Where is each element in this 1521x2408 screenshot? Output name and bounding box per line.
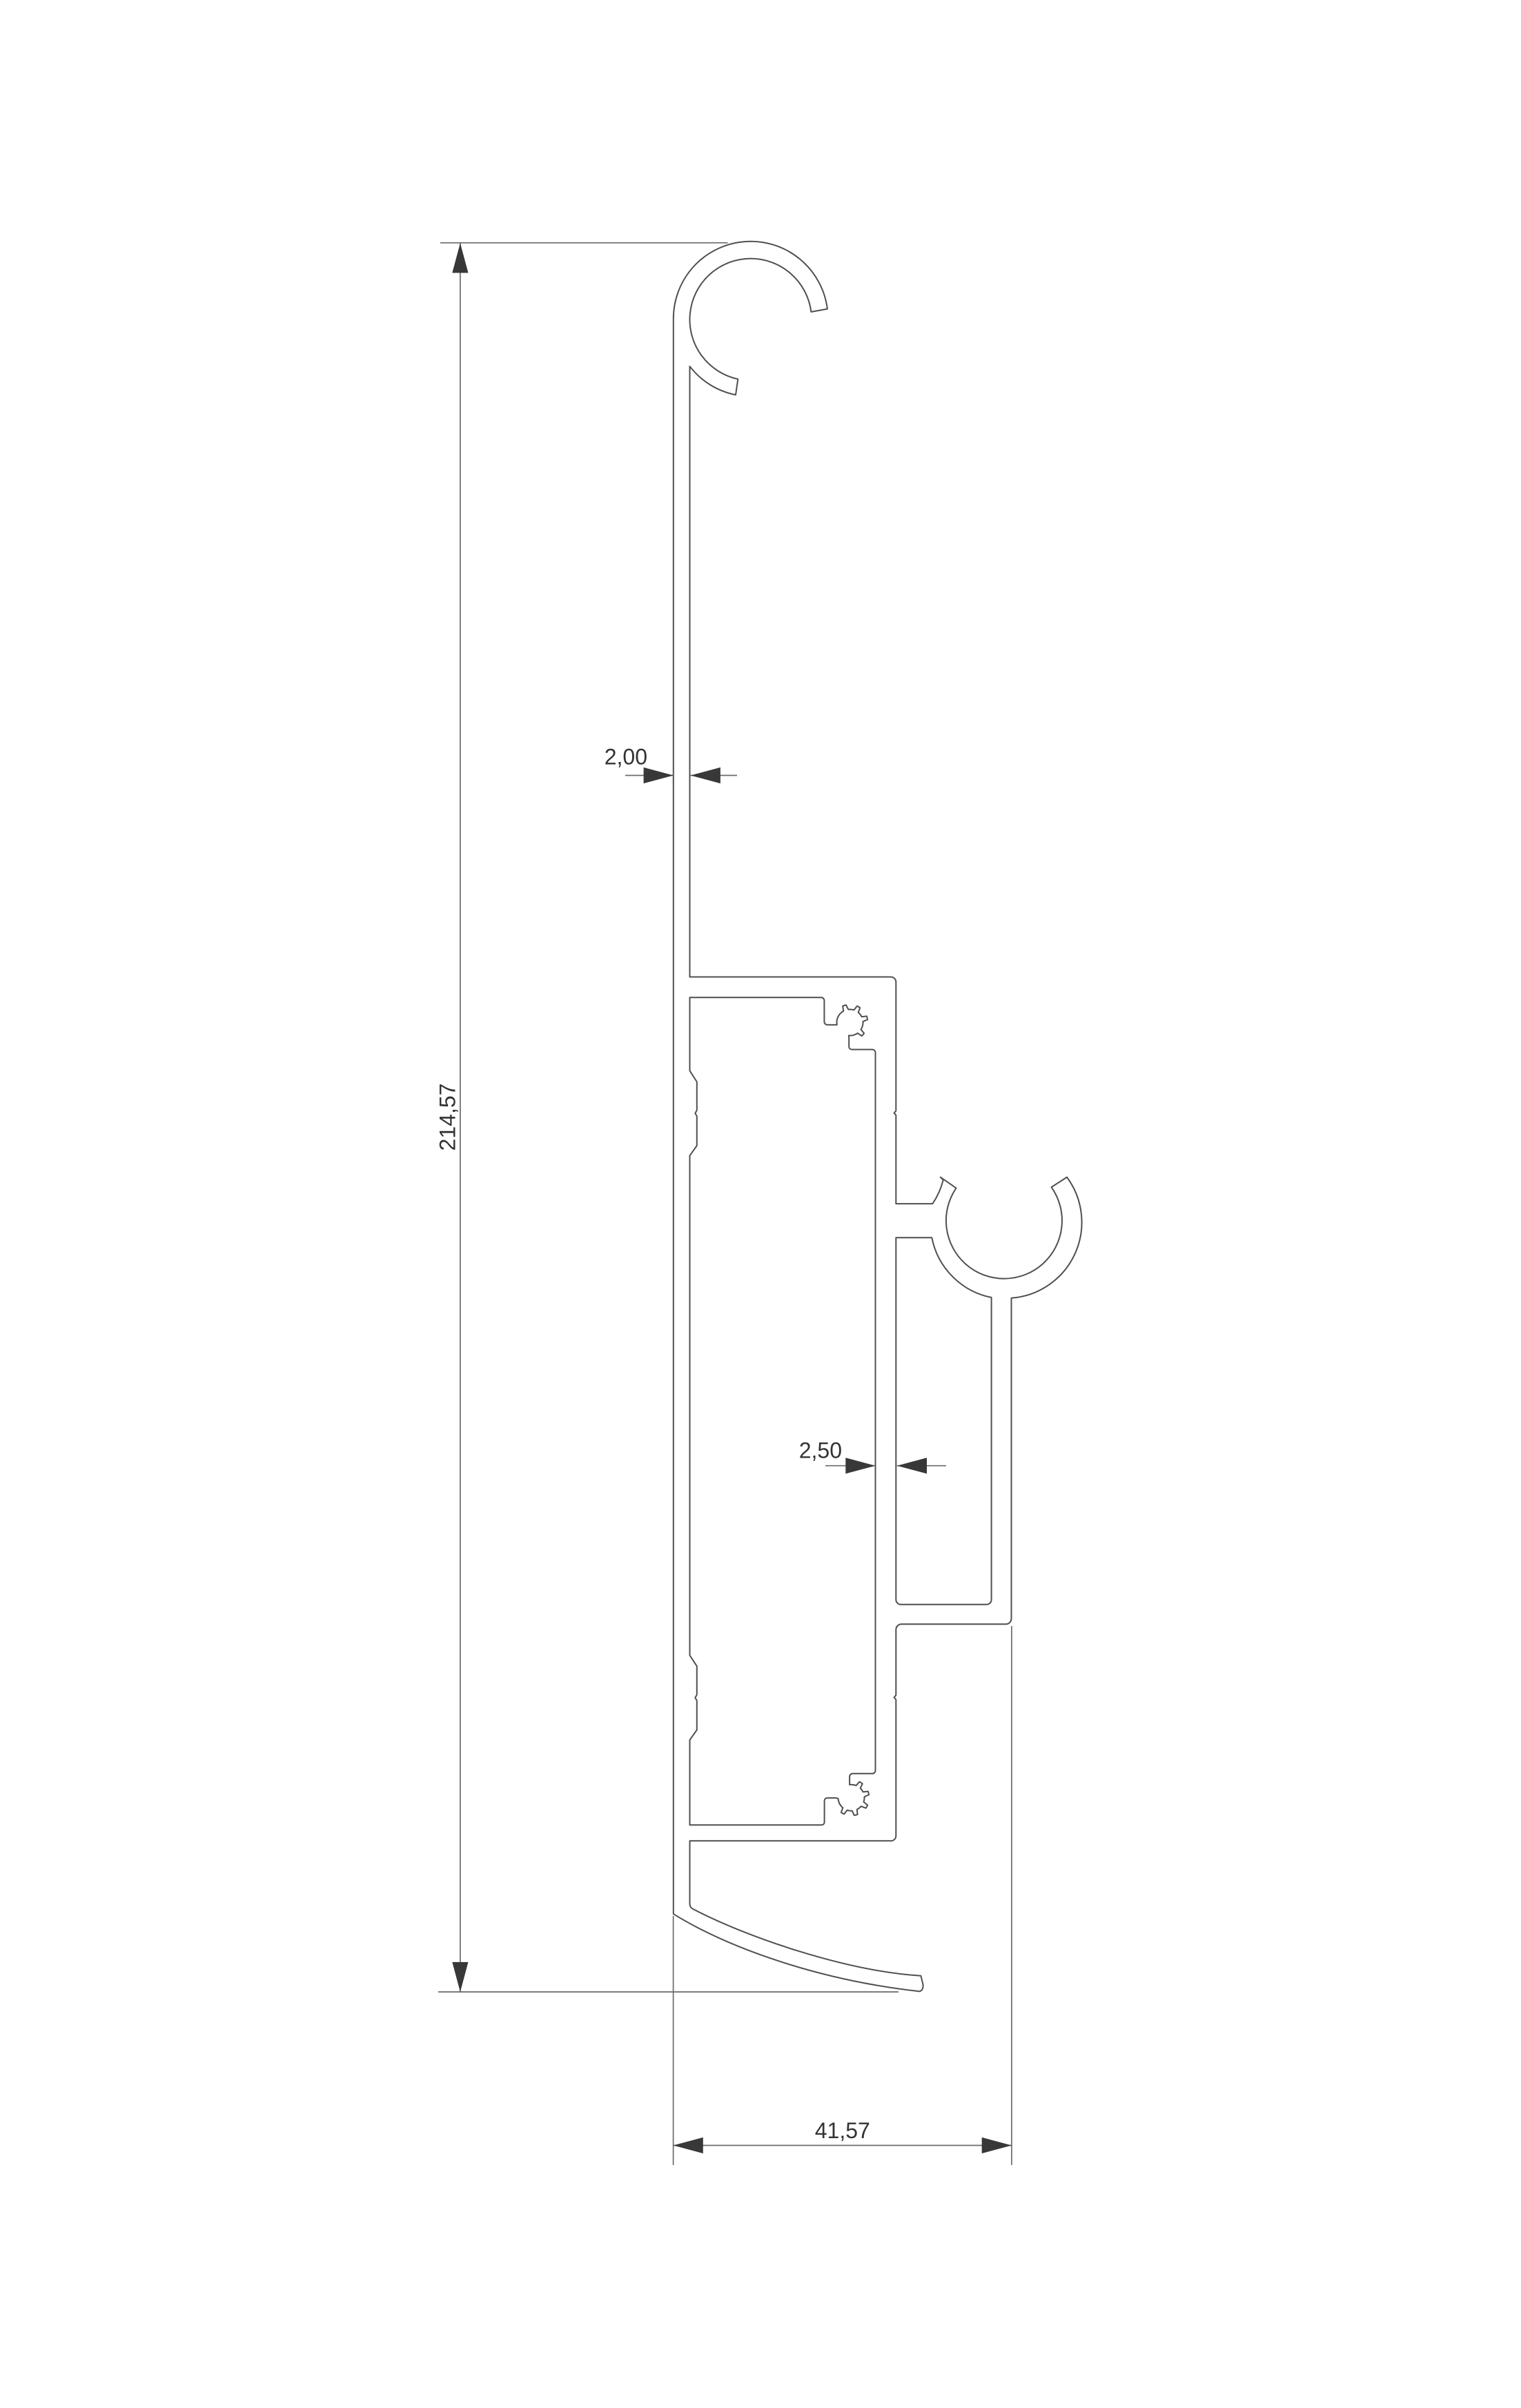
svg-text:214,57: 214,57	[435, 1084, 460, 1151]
svg-text:41,57: 41,57	[815, 2118, 870, 2143]
svg-text:2,00: 2,00	[605, 745, 647, 770]
svg-text:2,50: 2,50	[799, 1438, 842, 1463]
